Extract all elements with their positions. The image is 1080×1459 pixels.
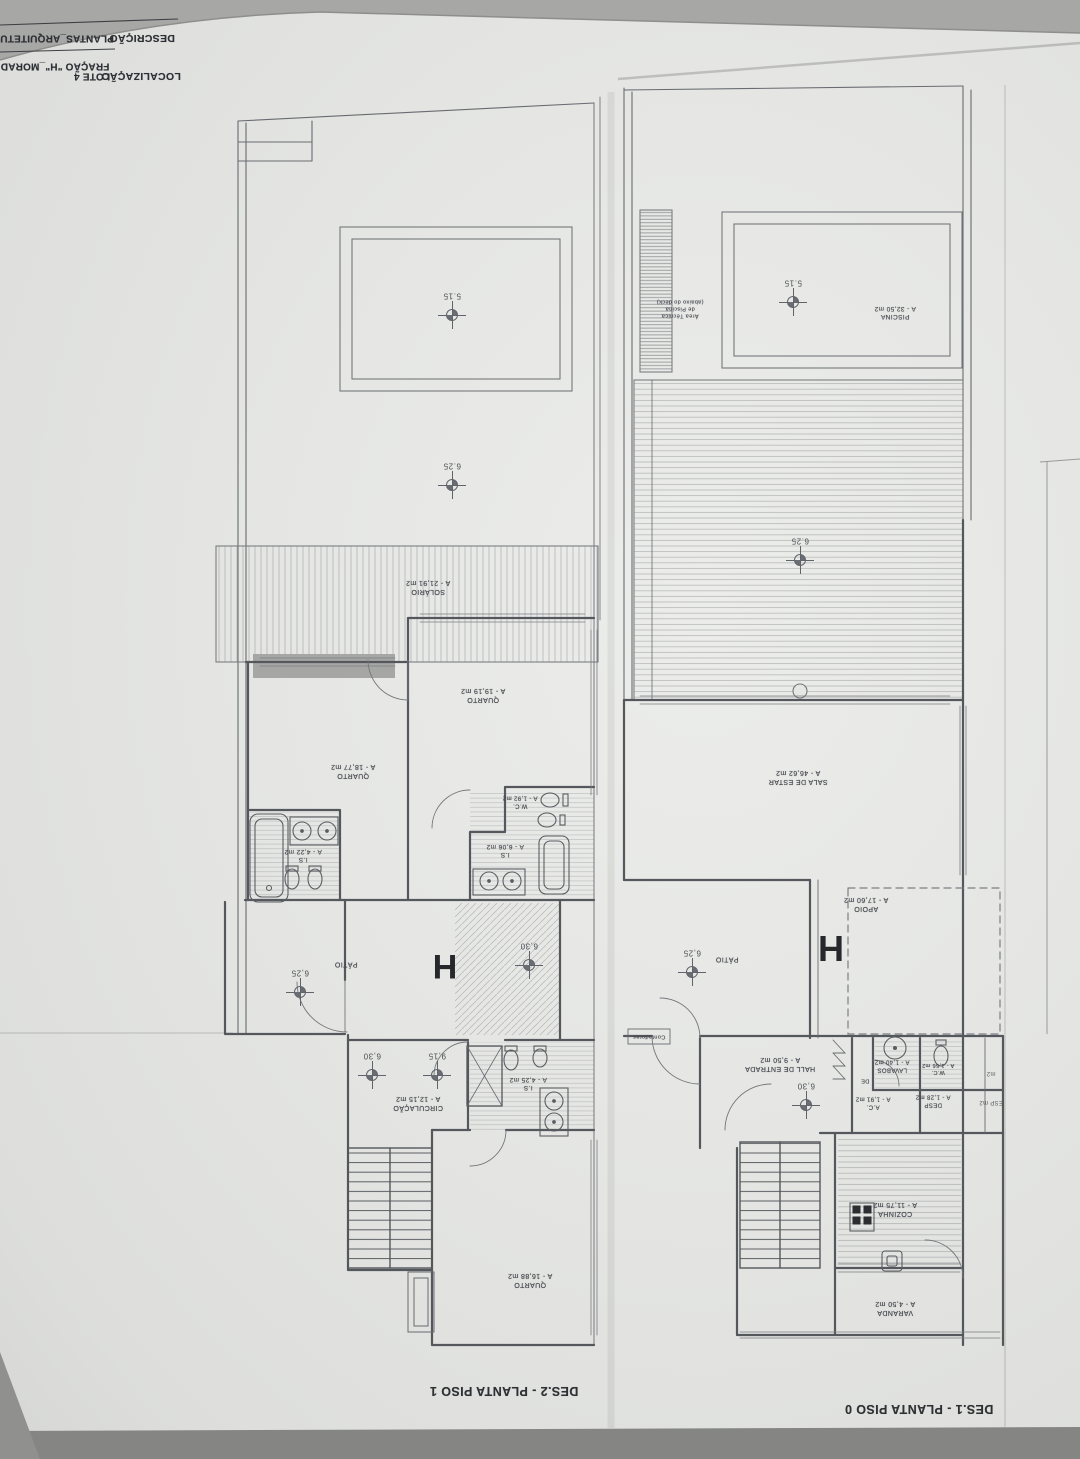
- piso-1-stairs: [348, 1148, 432, 1268]
- piso-0-stairs: [740, 1142, 820, 1268]
- piso-0-plan: [624, 86, 1003, 1345]
- paper-bottom-edge: [0, 1352, 1080, 1459]
- floor-plan-sheet-photo: DESCRIÇÃO PLANTAS_ARQUITETU FRAÇÃO "H"_M…: [0, 0, 1080, 1459]
- plan-linework: [0, 0, 1080, 1459]
- header-localization-value: LOTE 4: [74, 71, 110, 82]
- header-localization-label: LOCALIZAÇÃO: [101, 70, 181, 82]
- piso-1-plan: [216, 97, 600, 1345]
- header-description-value: PLANTAS_ARQUITETU: [0, 33, 114, 44]
- header-description-label: DESCRIÇÃO: [109, 32, 175, 44]
